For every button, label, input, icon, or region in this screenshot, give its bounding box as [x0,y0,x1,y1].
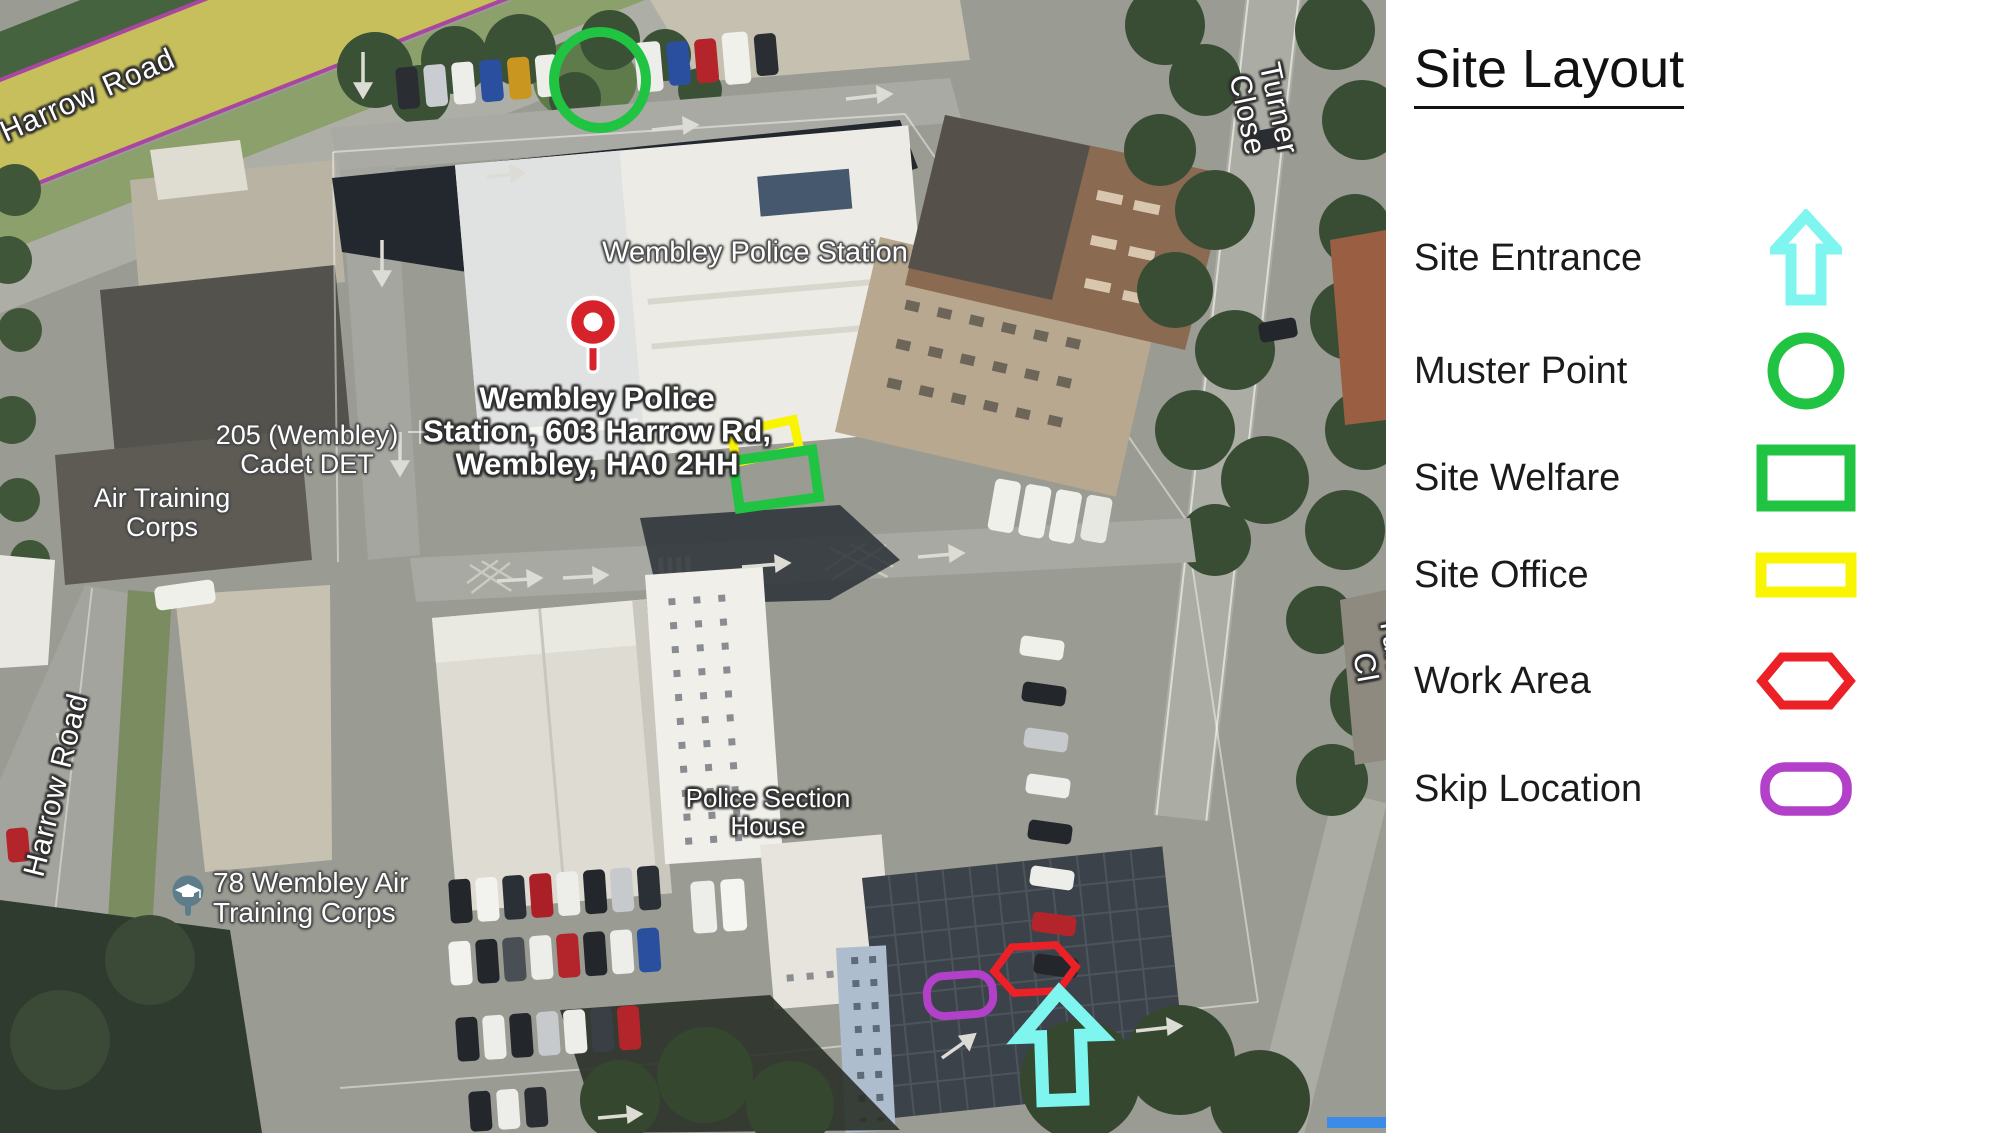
site-entrance-icon [1746,209,1866,307]
legend-row-work-area: Work Area [1386,626,2000,736]
satellite-map: Harrow Road Harrow Road Turner Close Tur… [0,0,1386,1133]
legend-row-site-entrance: Site Entrance [1386,203,2000,313]
legend-label-muster-point: Muster Point [1414,350,1627,393]
police-section-house-label: Police Section House [686,784,851,840]
cadet-det-label: 205 (Wembley) Cadet DET [216,421,399,479]
legend-label-work-area: Work Area [1414,660,1591,703]
police-station-address-label: Wembley Police Station, 603 Harrow Rd, W… [423,382,771,481]
work-area-icon [1746,646,1866,716]
map-scene [0,0,1386,1133]
legend-label-site-welfare: Site Welfare [1414,457,1620,500]
small-shed [150,140,248,200]
air-training-corps-label: Air Training Corps [94,484,231,542]
legend-label-site-entrance: Site Entrance [1414,237,1642,280]
muster-point-icon [1746,326,1866,416]
legend-label-site-office: Site Office [1414,554,1589,597]
legend-row-skip-location: Skip Location [1386,734,2000,844]
scale-bar [1327,1117,1386,1128]
site-layout-page: Harrow Road Harrow Road Turner Close Tur… [0,0,2000,1133]
page-title: Site Layout [1414,38,1684,109]
section-house-west-roof [432,599,672,912]
police-station-roof-label: Wembley Police Station [602,237,908,268]
skip-location-icon [1746,756,1866,822]
wembley-atc-poi-label: 78 Wembley Air Training Corps [213,868,409,928]
legend-label-skip-location: Skip Location [1414,768,1642,811]
site-office-icon [1746,546,1866,604]
legend-panel: Site Layout Site Entrance Muster Point S… [1386,0,2000,1133]
legend-row-muster-point: Muster Point [1386,316,2000,426]
legend-row-site-welfare: Site Welfare [1386,423,2000,533]
car-row-4 [468,1087,549,1132]
site-welfare-icon [1746,438,1866,518]
white-building-left [0,555,55,668]
legend-row-site-office: Site Office [1386,520,2000,630]
